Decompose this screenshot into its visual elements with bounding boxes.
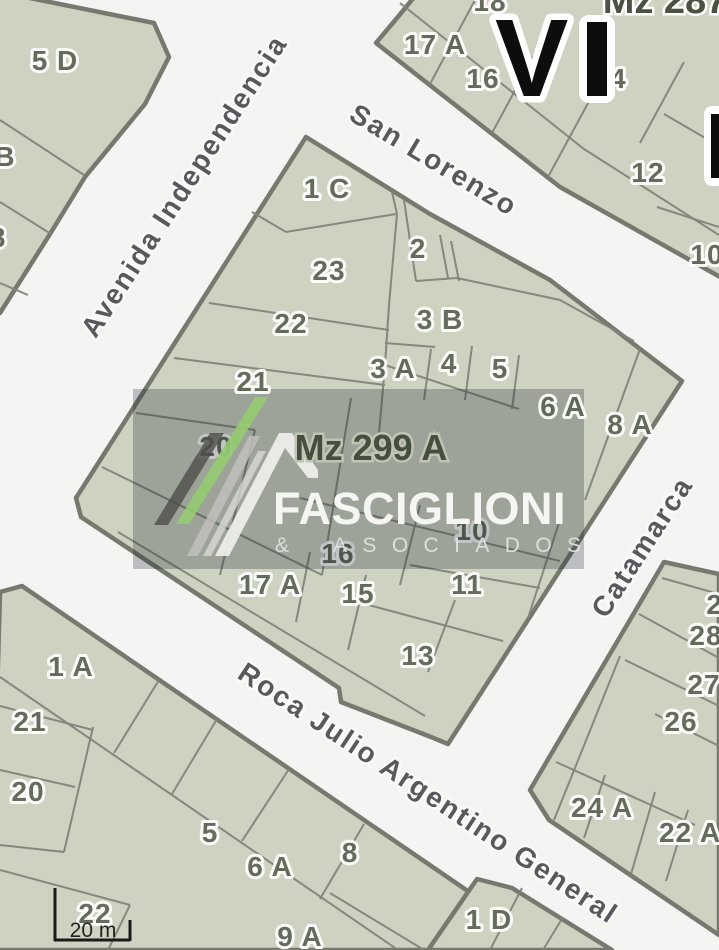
svg-text:20: 20 — [11, 776, 44, 807]
svg-text:26: 26 — [664, 706, 697, 737]
svg-text:3 B: 3 B — [417, 304, 464, 335]
svg-text:V: V — [495, 0, 568, 120]
svg-text:6 A: 6 A — [540, 391, 586, 422]
svg-text:28: 28 — [689, 620, 719, 651]
svg-text:17 A: 17 A — [239, 569, 301, 600]
svg-text:6 A: 6 A — [247, 851, 293, 882]
svg-text:20 m: 20 m — [70, 919, 117, 942]
svg-text:8: 8 — [0, 222, 6, 253]
svg-text:21: 21 — [13, 706, 46, 737]
svg-text:3 A: 3 A — [370, 353, 416, 384]
svg-text:22: 22 — [274, 308, 307, 339]
svg-text:27: 27 — [687, 669, 719, 700]
svg-text:Mz 299 A: Mz 299 A — [295, 427, 448, 468]
svg-text:2: 2 — [410, 233, 427, 264]
svg-text:21: 21 — [236, 366, 269, 397]
svg-text:1 D: 1 D — [466, 904, 513, 935]
svg-text:Mz 287: Mz 287 — [603, 0, 719, 22]
svg-text:5: 5 — [202, 817, 219, 848]
svg-text:12: 12 — [631, 157, 664, 188]
svg-text:24 A: 24 A — [571, 792, 633, 823]
svg-text:&: & — [275, 534, 289, 557]
svg-text:13: 13 — [401, 640, 434, 671]
svg-text:B: B — [0, 141, 16, 172]
svg-text:11: 11 — [451, 569, 483, 600]
svg-text:1 C: 1 C — [304, 173, 351, 204]
svg-text:23: 23 — [312, 255, 345, 286]
svg-text:8: 8 — [342, 837, 359, 868]
svg-text:5: 5 — [492, 353, 509, 384]
svg-text:17 A: 17 A — [404, 29, 466, 60]
svg-text:10: 10 — [690, 239, 719, 270]
svg-text:9 A: 9 A — [277, 921, 323, 950]
svg-text:4: 4 — [441, 348, 458, 379]
svg-text:ASOCIADOS: ASOCIADOS — [333, 534, 596, 557]
svg-text:8 A: 8 A — [607, 409, 653, 440]
svg-text:FASCIGLIONI: FASCIGLIONI — [273, 483, 566, 534]
svg-text:22 A: 22 A — [659, 817, 719, 848]
svg-text:29: 29 — [706, 589, 719, 620]
svg-text:1 A: 1 A — [48, 651, 94, 682]
svg-text:5 D: 5 D — [32, 45, 79, 76]
svg-text:15: 15 — [341, 578, 374, 609]
